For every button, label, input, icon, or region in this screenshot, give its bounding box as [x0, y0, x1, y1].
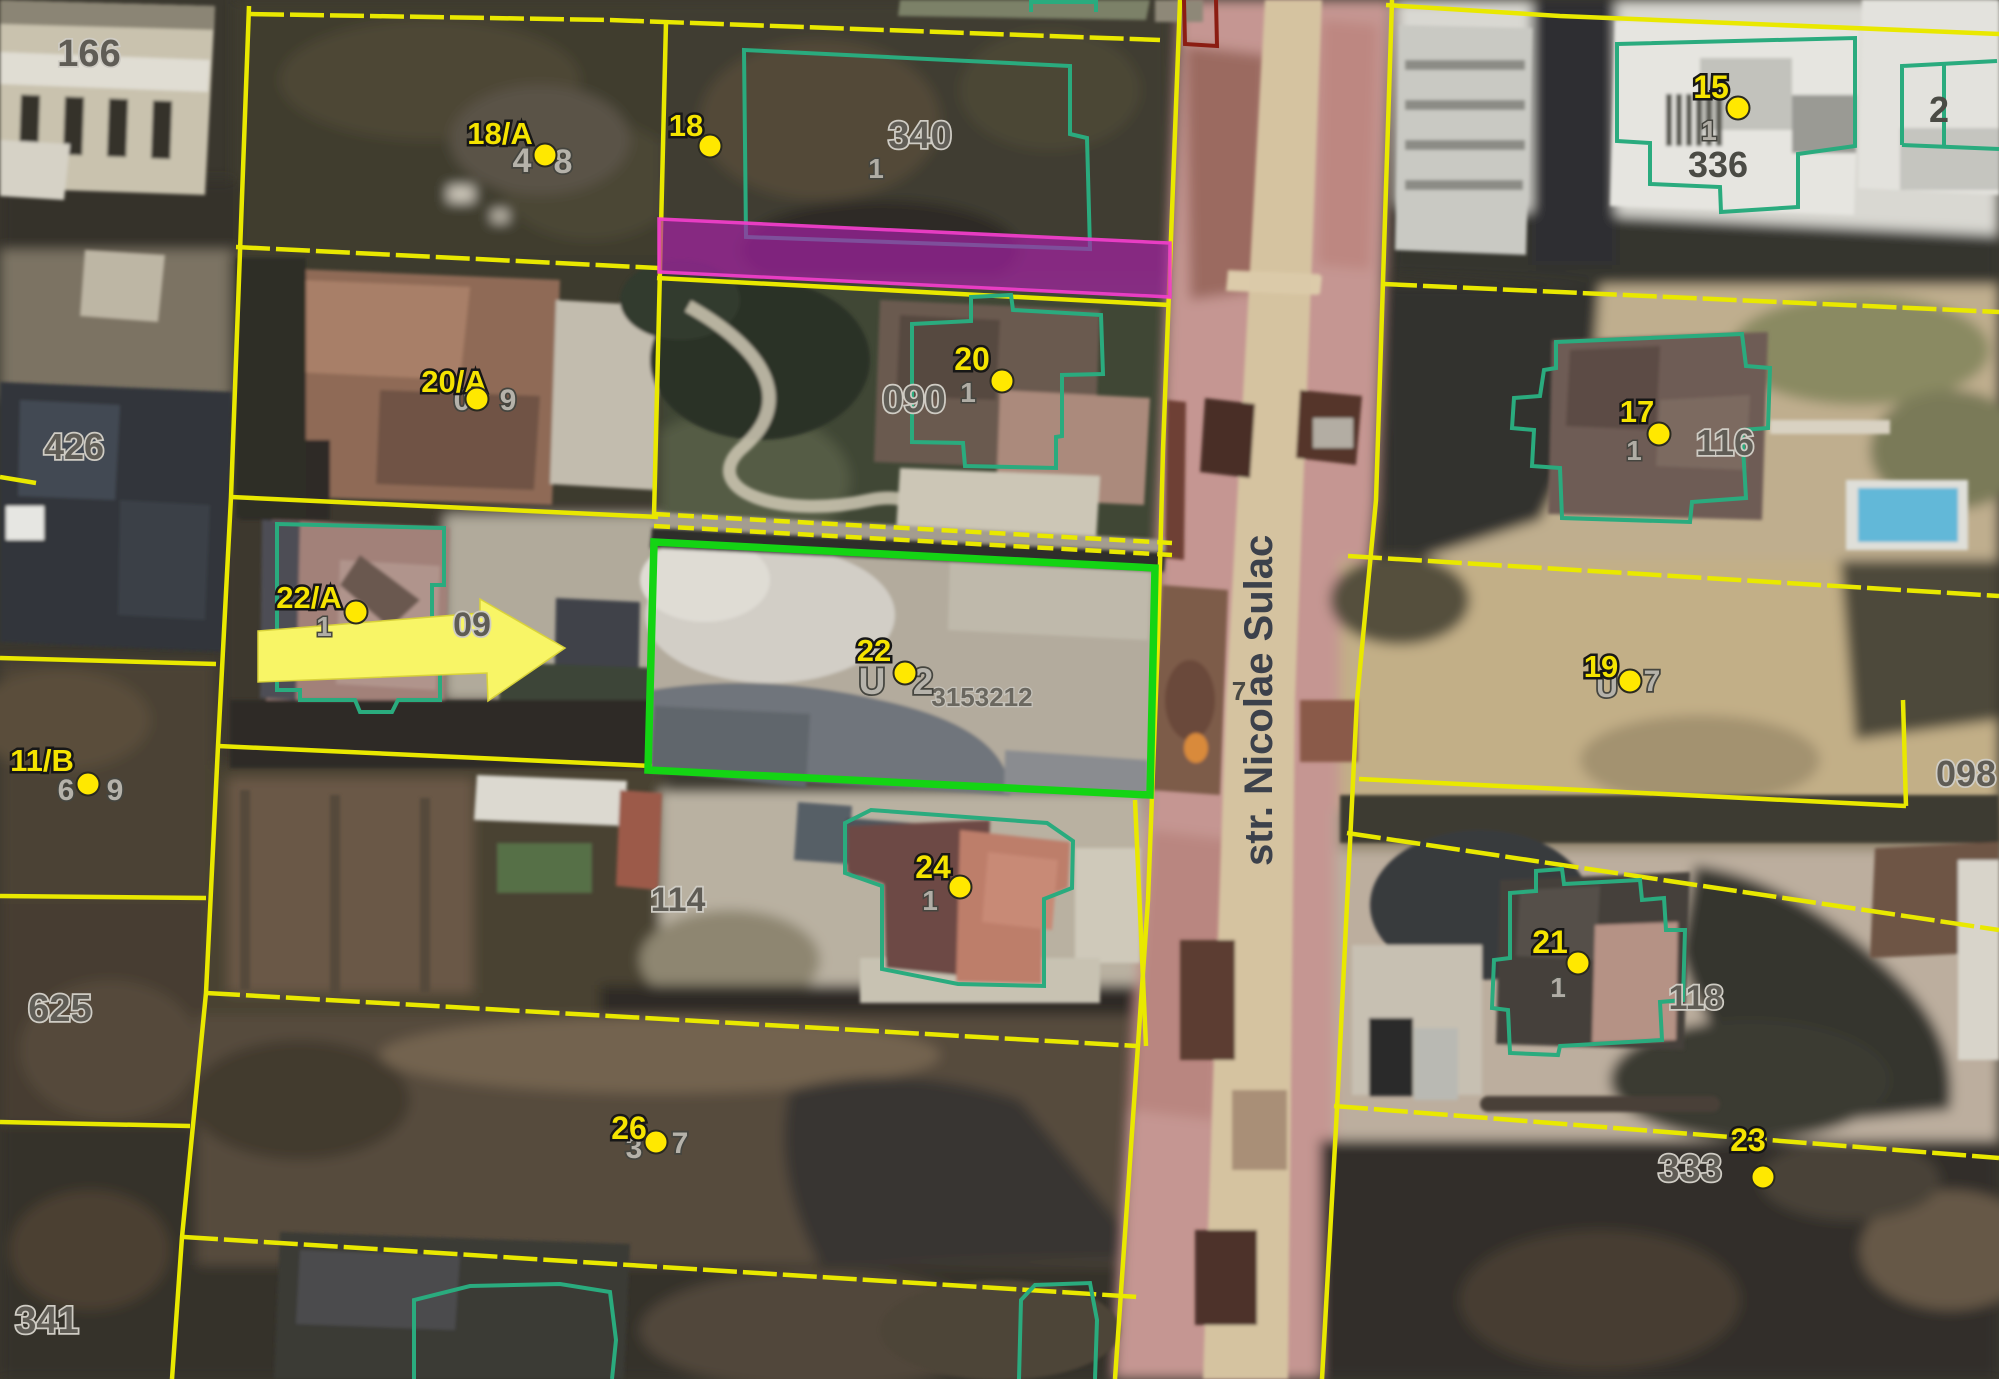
- svg-text:9: 9: [107, 774, 124, 807]
- svg-text:6: 6: [58, 774, 75, 807]
- svg-text:340: 340: [888, 115, 951, 157]
- svg-text:090: 090: [882, 379, 945, 421]
- svg-text:3153212: 3153212: [931, 682, 1032, 712]
- svg-text:7: 7: [1644, 665, 1661, 698]
- svg-text:426: 426: [44, 426, 104, 467]
- svg-text:336: 336: [1688, 144, 1748, 185]
- svg-text:8: 8: [554, 143, 573, 181]
- svg-text:625: 625: [28, 988, 91, 1030]
- svg-text:341: 341: [15, 1300, 78, 1342]
- svg-text:1: 1: [1550, 972, 1566, 1003]
- svg-text:18/A: 18/A: [467, 116, 532, 151]
- svg-text:19: 19: [1584, 649, 1618, 684]
- svg-text:116: 116: [1696, 422, 1754, 463]
- svg-text:2: 2: [1929, 89, 1949, 130]
- svg-text:23: 23: [1730, 1122, 1766, 1158]
- svg-text:22/A: 22/A: [276, 580, 341, 615]
- svg-text:114: 114: [651, 881, 706, 919]
- svg-text:18: 18: [669, 108, 703, 143]
- svg-text:1: 1: [1626, 435, 1642, 466]
- svg-text:1: 1: [316, 611, 332, 642]
- svg-text:1: 1: [922, 885, 938, 916]
- svg-text:09: 09: [453, 606, 491, 644]
- svg-text:24: 24: [915, 849, 951, 885]
- svg-text:str. Nicolae Sulac: str. Nicolae Sulac: [1237, 535, 1281, 866]
- svg-text:118: 118: [1669, 979, 1724, 1017]
- svg-text:9: 9: [500, 384, 517, 417]
- svg-text:1: 1: [1701, 115, 1717, 146]
- svg-text:22: 22: [857, 633, 891, 668]
- svg-text:20: 20: [954, 341, 990, 377]
- svg-text:7: 7: [672, 1127, 689, 1160]
- svg-text:1: 1: [868, 153, 884, 184]
- svg-text:26: 26: [611, 1110, 647, 1146]
- svg-text:17: 17: [1620, 394, 1654, 429]
- svg-text:21: 21: [1532, 924, 1568, 960]
- svg-text:098: 098: [1936, 753, 1996, 794]
- svg-text:1: 1: [960, 377, 976, 408]
- svg-text:11/B: 11/B: [10, 743, 74, 778]
- svg-text:15: 15: [1693, 69, 1729, 105]
- svg-text:333: 333: [1658, 1148, 1721, 1190]
- svg-text:166: 166: [57, 33, 120, 75]
